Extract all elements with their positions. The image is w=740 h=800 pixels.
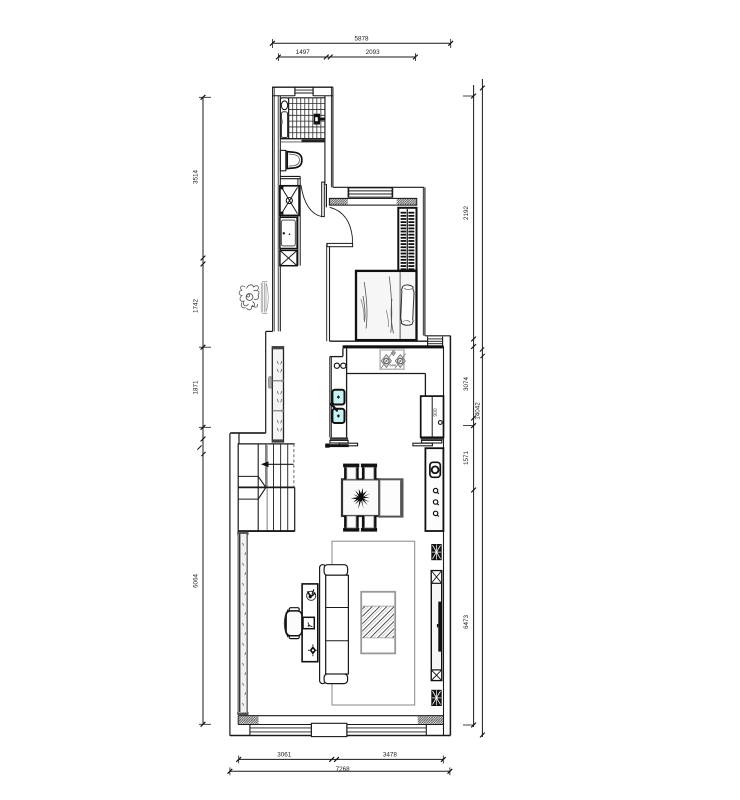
svg-text:3478: 3478 — [383, 751, 398, 758]
svg-text:900: 900 — [433, 408, 439, 417]
svg-text:1871: 1871 — [192, 380, 199, 395]
svg-text:3514: 3514 — [192, 170, 199, 185]
svg-text:3074: 3074 — [463, 377, 470, 392]
svg-text:3061: 3061 — [277, 751, 292, 758]
svg-text:2192: 2192 — [463, 206, 470, 221]
svg-text:6064: 6064 — [192, 574, 199, 589]
svg-text:7268: 7268 — [336, 766, 351, 773]
svg-text:1497: 1497 — [296, 49, 311, 56]
svg-text:5878: 5878 — [354, 35, 369, 42]
svg-text:1742: 1742 — [192, 299, 199, 314]
svg-text:14042: 14042 — [474, 402, 481, 420]
svg-text:2093: 2093 — [366, 49, 381, 56]
svg-text:1571: 1571 — [463, 451, 470, 466]
svg-text:6473: 6473 — [463, 615, 470, 630]
